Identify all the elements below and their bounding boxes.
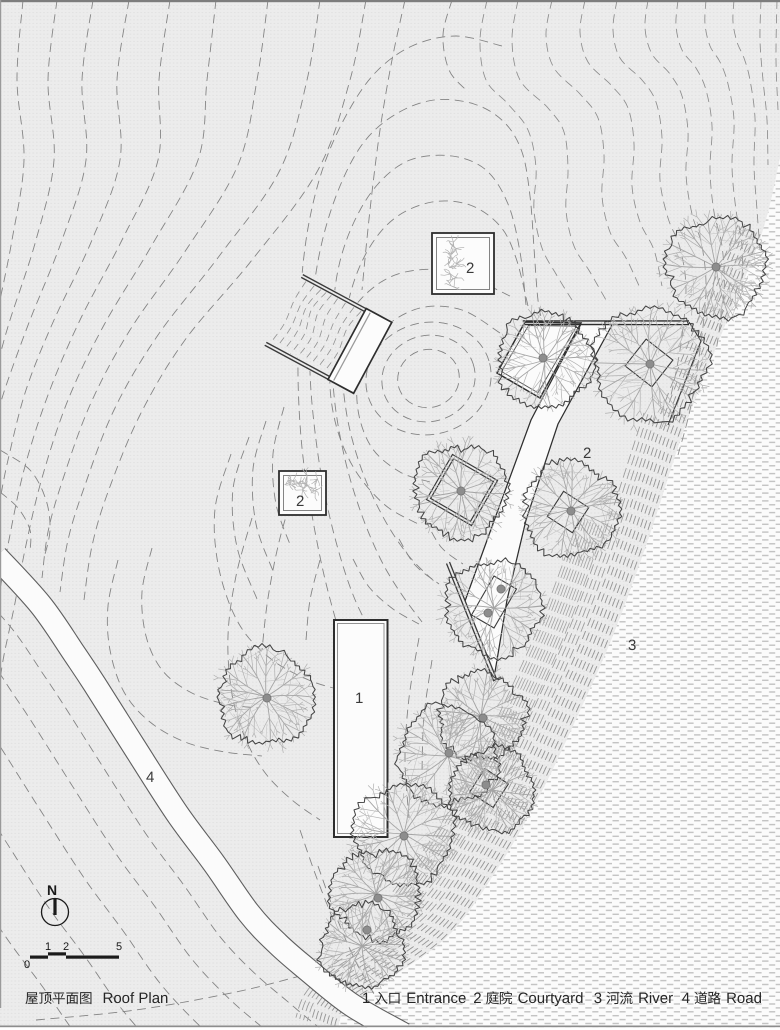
svg-text:River: River: [638, 990, 673, 1007]
svg-text:1: 1: [355, 690, 363, 707]
svg-text:N: N: [47, 882, 57, 898]
svg-text:2: 2: [466, 260, 474, 277]
svg-text:Entrance: Entrance: [406, 990, 466, 1007]
svg-text:1: 1: [362, 990, 370, 1007]
svg-text:2: 2: [473, 990, 481, 1007]
svg-text:4: 4: [682, 990, 690, 1007]
svg-text:2: 2: [63, 941, 69, 953]
svg-text:2: 2: [583, 445, 591, 462]
svg-text:Roof Plan: Roof Plan: [103, 990, 169, 1007]
svg-text:5: 5: [116, 941, 122, 953]
svg-text:4: 4: [146, 769, 154, 786]
svg-text:Road: Road: [726, 990, 762, 1007]
svg-text:0: 0: [24, 959, 30, 971]
svg-text:3: 3: [628, 637, 636, 654]
svg-text:Courtyard: Courtyard: [518, 990, 584, 1007]
svg-text:2: 2: [296, 493, 304, 510]
svg-text:1: 1: [45, 941, 51, 953]
svg-text:3: 3: [594, 990, 602, 1007]
